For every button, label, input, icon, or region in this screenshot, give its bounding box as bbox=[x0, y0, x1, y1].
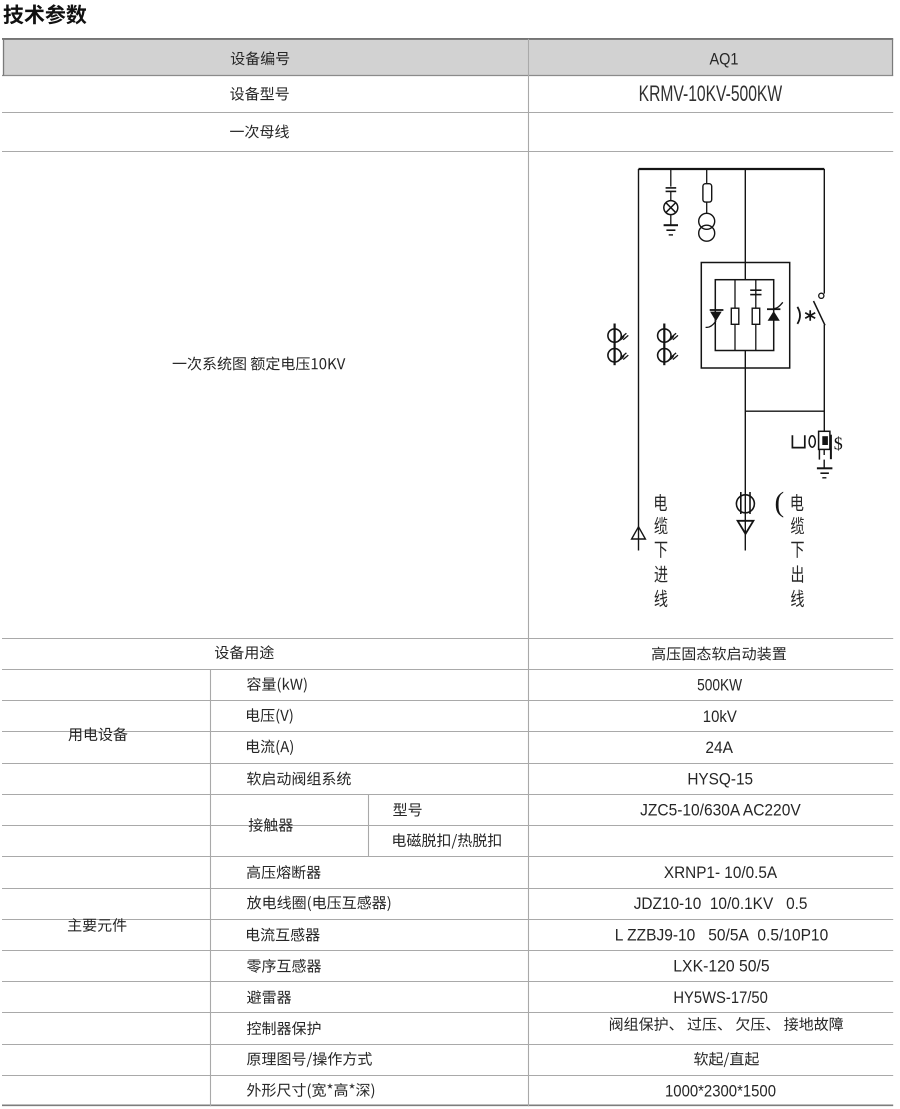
svg-text:JDZ10-10 10/0.1KV 0.5: JDZ10-10 10/0.1KV 0.5 bbox=[634, 895, 808, 913]
svg-text:$: $ bbox=[834, 433, 843, 453]
svg-text:LXK-120 50/5: LXK-120 50/5 bbox=[673, 958, 769, 976]
svg-text:JZC5-10/630A AC220V: JZC5-10/630A AC220V bbox=[640, 802, 801, 820]
svg-text:10kV: 10kV bbox=[703, 708, 737, 726]
svg-text:500KW: 500KW bbox=[697, 677, 742, 695]
svg-text:HY5WS-17/50: HY5WS-17/50 bbox=[673, 989, 768, 1007]
svg-text:1000*2300*1500: 1000*2300*1500 bbox=[665, 1083, 776, 1101]
svg-text:HYSQ-15: HYSQ-15 bbox=[687, 770, 753, 788]
svg-text:L ZZBJ9-10 50/5A 0.5/10P10: L ZZBJ9-10 50/5A 0.5/10P10 bbox=[615, 926, 828, 944]
svg-text:(: ( bbox=[775, 487, 785, 519]
svg-text:24A: 24A bbox=[705, 739, 733, 757]
svg-text:KRMV-10KV-500KW: KRMV-10KV-500KW bbox=[639, 81, 783, 106]
svg-text:AQ1: AQ1 bbox=[710, 51, 739, 69]
svg-text:XRNP1- 10/0.5A: XRNP1- 10/0.5A bbox=[664, 864, 777, 882]
